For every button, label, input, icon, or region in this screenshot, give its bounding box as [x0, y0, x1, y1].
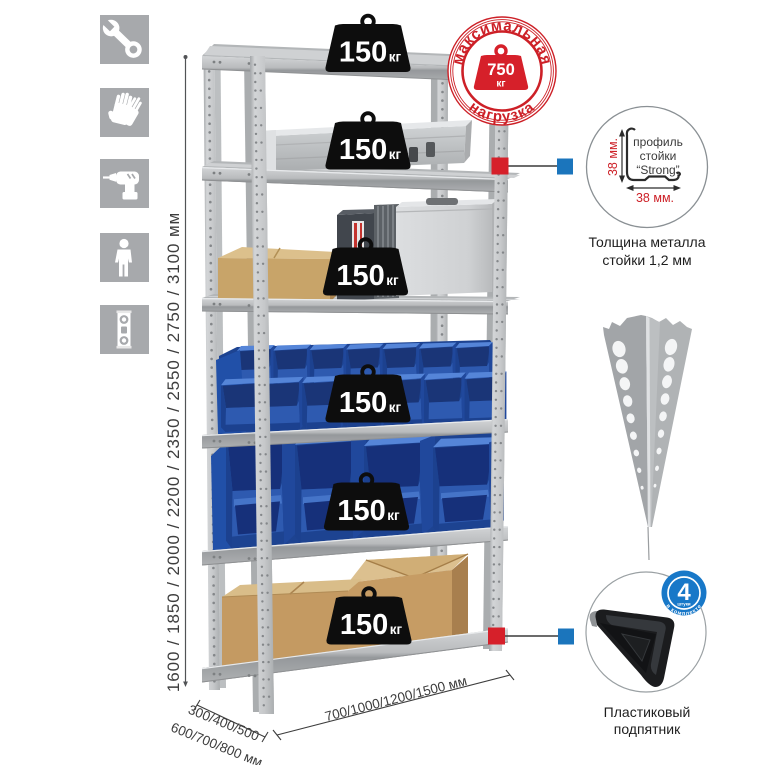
svg-text:кг: кг	[496, 79, 505, 90]
svg-text:38 мм.: 38 мм.	[636, 191, 674, 205]
svg-text:Пластиковый: Пластиковый	[604, 704, 691, 720]
svg-text:750: 750	[487, 61, 515, 79]
svg-text:Толщина металла: Толщина металла	[589, 234, 706, 250]
svg-text:38 мм.: 38 мм.	[606, 138, 620, 176]
svg-text:стойки: стойки	[640, 149, 677, 163]
svg-text:штуки: штуки	[677, 602, 691, 607]
svg-text:подпятник: подпятник	[614, 721, 681, 737]
svg-text:стойки 1,2 мм: стойки 1,2 мм	[602, 252, 691, 268]
svg-text:“Strong”: “Strong”	[636, 163, 679, 177]
svg-text:1600 / 1850 / 2000 / 2200 / 23: 1600 / 1850 / 2000 / 2200 / 2350 / 2550 …	[164, 212, 183, 692]
svg-text:профиль: профиль	[633, 135, 683, 149]
svg-text:700/1000/1200/1500 мм: 700/1000/1200/1500 мм	[323, 673, 468, 724]
